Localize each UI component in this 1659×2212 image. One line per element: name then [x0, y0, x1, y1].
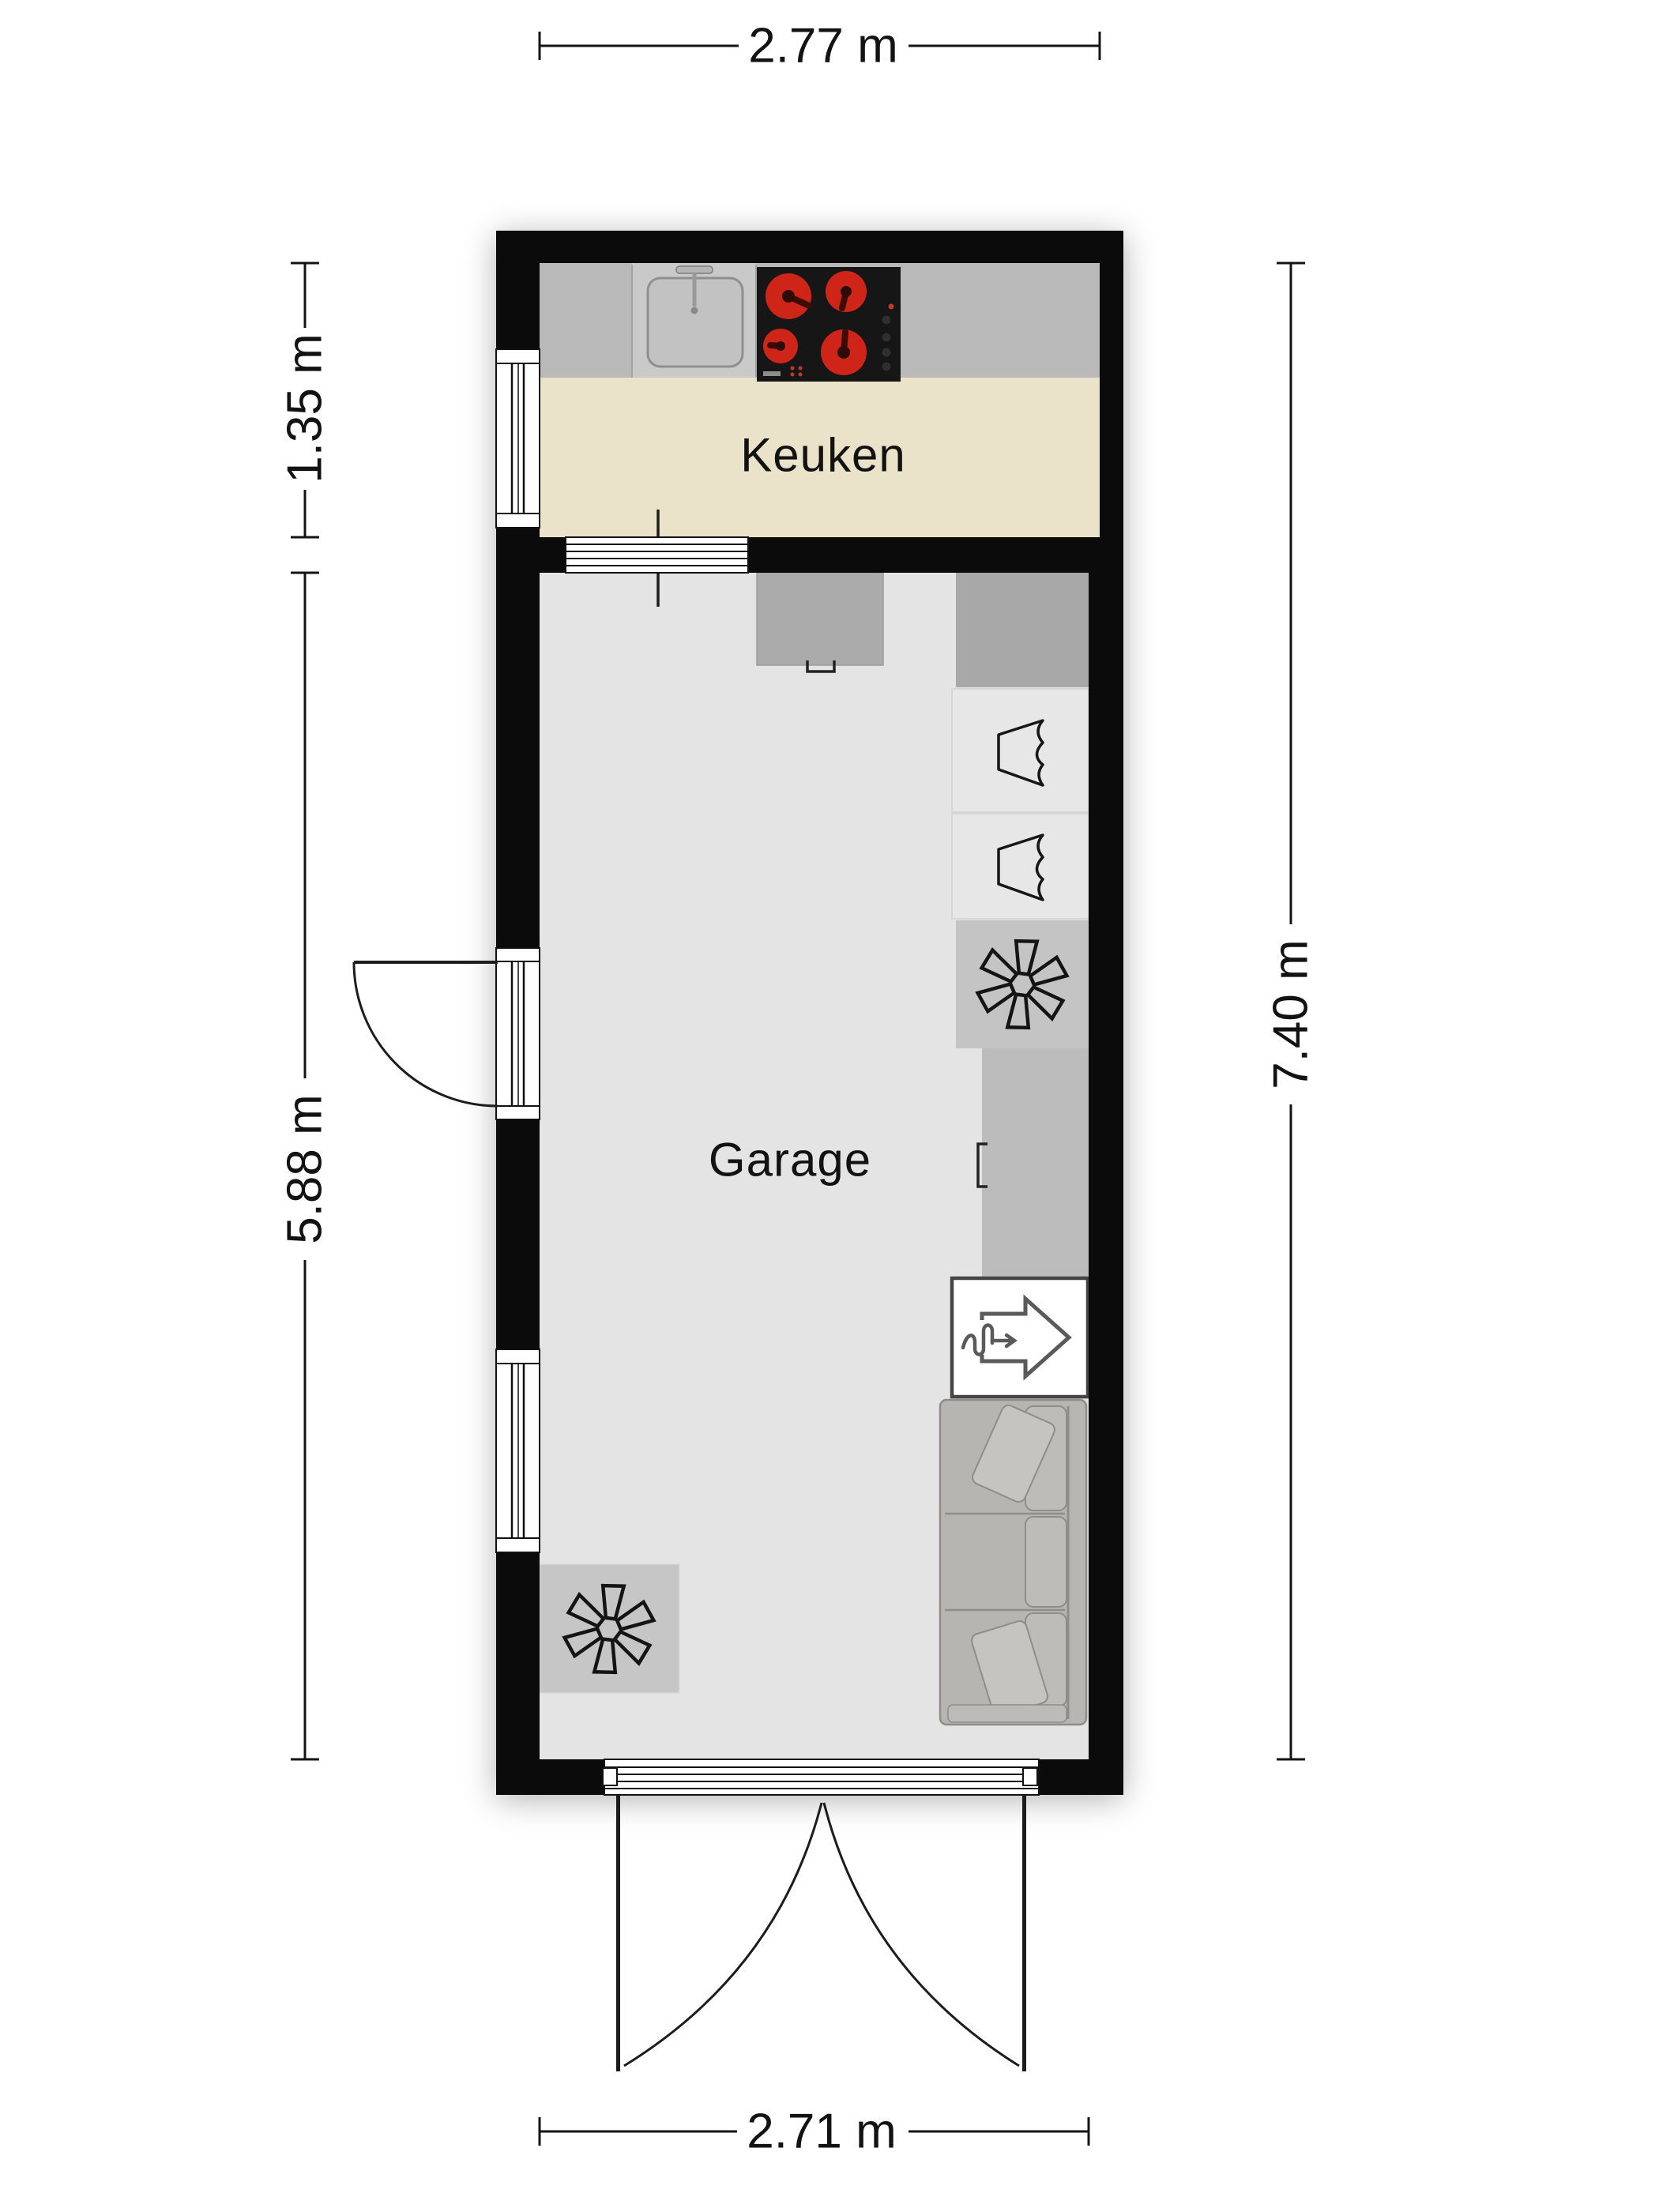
wall-left-segment [496, 1119, 540, 1349]
right-counter-strip [982, 1048, 1089, 1278]
door-swing-arc-icon [824, 1803, 1019, 2066]
wardrobe-top [952, 689, 1089, 812]
dimension-label-garage-height: 5.88 m [277, 1094, 333, 1244]
wall-left-segment [496, 231, 540, 349]
door-leaf [1022, 1795, 1026, 2071]
cooktop-icon [757, 267, 901, 382]
wall-bottom-right [1039, 1759, 1123, 1795]
wall-right-kitchen [1100, 231, 1123, 573]
garage-side-door [354, 948, 540, 1119]
garage-window [496, 1349, 540, 1552]
divider-cabinet [757, 573, 883, 665]
door-swing-arc-icon [354, 962, 498, 1106]
dimension-label-bottom: 2.71 m [747, 2104, 897, 2160]
room-label-garage: Garage [709, 1133, 871, 1187]
wall-right-garage [1089, 573, 1123, 1795]
floorplan-drawing [0, 0, 1659, 2212]
cooktop-label [763, 371, 781, 376]
door-post [603, 1768, 617, 1785]
cooktop-indicator-light [889, 304, 894, 310]
right-counter-block [956, 573, 1089, 687]
dimension-label-total-height: 7.40 m [1263, 939, 1319, 1089]
heat-recovery-arrow-icon [952, 1278, 1088, 1397]
wardrobe-bottom [952, 814, 1089, 919]
kitchen-door-threshold [566, 537, 748, 573]
sofa [940, 1400, 1086, 1725]
wall-top [496, 231, 1123, 263]
door-swing-arc-icon [624, 1803, 822, 2066]
room-label-kitchen: Keuken [740, 428, 906, 483]
wall-bottom-left [496, 1759, 604, 1795]
kitchen-window [496, 349, 540, 528]
dimension-label-kitchen-height: 1.35 m [277, 333, 333, 483]
door-post [1023, 1768, 1037, 1785]
wall-left-segment [496, 1552, 540, 1795]
dimension-label-top: 2.77 m [748, 18, 898, 74]
door-leaf [616, 1795, 620, 2071]
wall-divider-left [540, 537, 566, 573]
floorplan-canvas: 2.77 m 1.35 m 5.88 m 7.40 m 2.71 m Keuke… [0, 0, 1659, 2212]
wall-divider-right [748, 537, 1100, 573]
wall-left-segment [496, 528, 540, 948]
garage-double-door [603, 1759, 1039, 2071]
